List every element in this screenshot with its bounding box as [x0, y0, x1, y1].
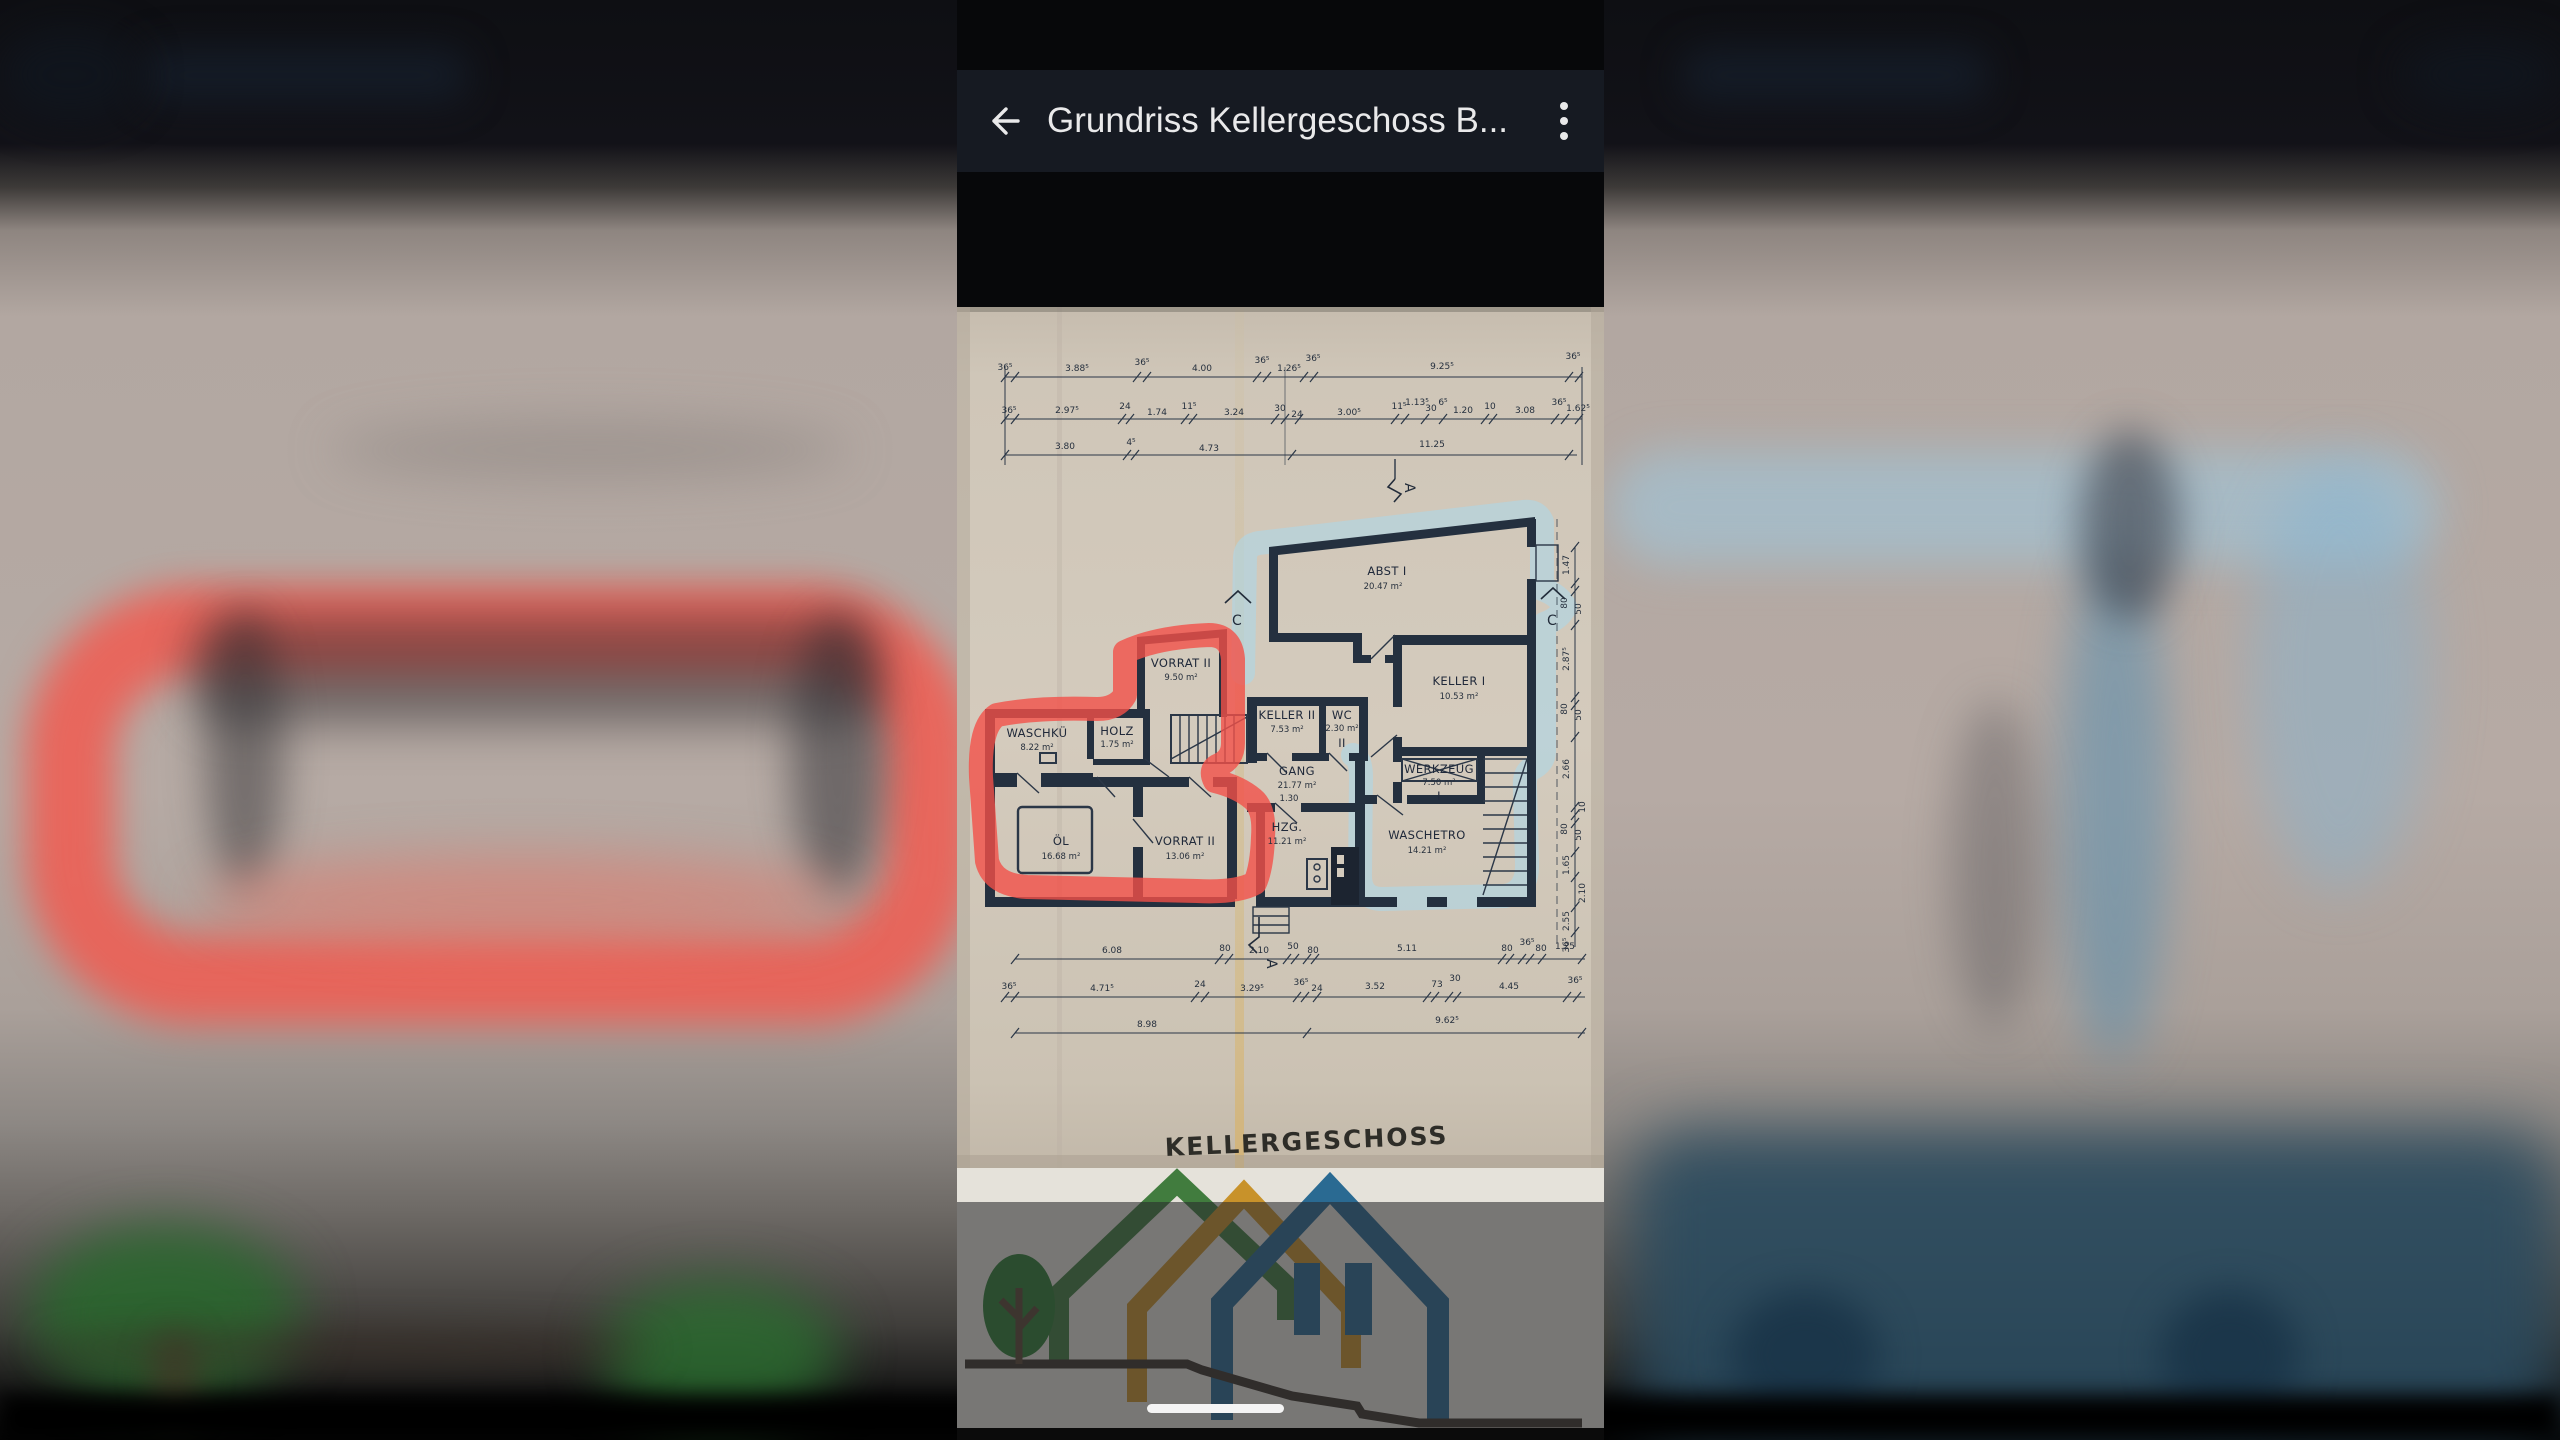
background-blur: [330, 420, 850, 480]
dim-label: 1.47: [1562, 555, 1572, 575]
logo-strip: [957, 1168, 1604, 1440]
room-label: VORRAT II: [1155, 834, 1215, 848]
background-blur: [140, 48, 470, 103]
background-blur: [200, 855, 850, 945]
dim-label: 3.52: [1365, 982, 1385, 992]
dim-label: 30: [1425, 404, 1437, 414]
dim-label: 36⁵: [1305, 354, 1320, 364]
dim-label: 36⁵: [1134, 358, 1149, 368]
section-marker-label: A: [1263, 959, 1279, 969]
room-label: HZG.: [1272, 820, 1303, 834]
room-label: GANG: [1279, 764, 1315, 778]
dim-label: 2.66: [1562, 759, 1572, 779]
dim-label: 80: [1219, 944, 1231, 954]
navigation-scrim: [957, 1202, 1604, 1428]
room-area: 16.68 m²: [1042, 852, 1081, 862]
dim-label: 36⁵: [1293, 978, 1308, 988]
dim-label: 2.87⁵: [1562, 647, 1572, 671]
room-label: HOLZ: [1100, 724, 1134, 738]
room-area: 20.47 m²: [1364, 582, 1403, 592]
dim-label: 24: [1194, 980, 1206, 990]
dim-label: 3.80: [1055, 442, 1075, 452]
dim-label: 8.98: [1137, 1020, 1157, 1030]
room-area: 14.21 m²: [1408, 846, 1447, 856]
dim-label: 11.25: [1419, 440, 1445, 450]
section-marker-label: C: [1232, 613, 1242, 629]
dim-label: 10: [1484, 402, 1496, 412]
background-blur: [1950, 700, 2040, 1030]
dim-label: 73: [1431, 980, 1442, 990]
dim-label: 36⁵: [1519, 938, 1534, 948]
dim-label: 50: [1574, 603, 1584, 615]
background-blur: [40, 1330, 660, 1365]
dim-label: 9.62⁵: [1435, 1016, 1459, 1026]
dim-label: 36⁵: [1562, 937, 1572, 952]
home-indicator[interactable]: [1147, 1404, 1284, 1413]
room-area: 13.06 m²: [1166, 852, 1205, 862]
dim-label: 9.25⁵: [1430, 362, 1454, 372]
background-blue-streak-blur: [2060, 540, 2170, 1060]
dim-label: 80: [1560, 703, 1570, 715]
dim-label: 3.00⁵: [1337, 408, 1361, 418]
background-blur: [0, 30, 140, 120]
dim-label: 4.73: [1199, 444, 1219, 454]
background-blur: [2400, 40, 2560, 110]
room-area: 7.53 m²: [1270, 725, 1303, 735]
dim-label: 3.08: [1515, 406, 1535, 416]
dim-label: 1.74: [1147, 408, 1167, 418]
dim-label: 80: [1560, 597, 1570, 609]
background-blur: [190, 615, 880, 725]
background-blur: [790, 615, 885, 895]
room-area: 7.50 m²: [1422, 778, 1455, 788]
screenshot-stage: Grundriss Kellergeschoss B...: [0, 0, 2560, 1440]
back-button[interactable]: [957, 101, 1047, 141]
dim-label: 1.20: [1453, 406, 1473, 416]
room-label: ÖL: [1053, 832, 1069, 848]
room-label: VORRAT II: [1151, 656, 1211, 670]
dim-label: 4.45: [1499, 982, 1519, 992]
dim-label: 80: [1307, 946, 1319, 956]
dim-label: 24: [1311, 984, 1323, 994]
background-blue-streak-blur: [2250, 460, 2430, 890]
dim-label: 2.55: [1562, 911, 1572, 931]
dim-label: 6.08: [1102, 946, 1122, 956]
section-marker-label: A: [1401, 483, 1417, 493]
dim-label: 3.29⁵: [1240, 984, 1264, 994]
dim-label: 5.11: [1397, 944, 1417, 954]
room-label-suffix: I: [1437, 789, 1441, 803]
room-label: WERKZEUG: [1404, 762, 1474, 776]
dim-label: 36⁵: [1001, 982, 1016, 992]
dim-label: 4.71⁵: [1090, 984, 1114, 994]
dim-label: 36⁵: [1551, 398, 1566, 408]
dim-label: 30: [1449, 974, 1461, 984]
room-label: ABST I: [1367, 564, 1406, 578]
room-label: WASCHETRO: [1388, 828, 1466, 842]
dim-label: 50: [1287, 942, 1299, 952]
room-label: KELLER I: [1432, 674, 1485, 688]
room-area: 8.22 m²: [1020, 743, 1053, 753]
room-area: 2.30 m²: [1325, 724, 1358, 734]
dim-label: 24: [1119, 402, 1131, 412]
overflow-menu-button[interactable]: [1524, 98, 1604, 144]
dim-label: 30: [1274, 404, 1286, 414]
dim-label: 80: [1560, 823, 1570, 835]
room-label: KELLER II: [1259, 708, 1316, 722]
floorplan-image[interactable]: ABST I 20.47 m² KELLER I 10.53 m² VORRAT…: [957, 307, 1604, 1168]
dim-label: 2.10: [1249, 946, 1269, 956]
room-area: 1.75 m²: [1100, 740, 1133, 750]
dim-label: 36⁵: [1565, 352, 1580, 362]
room-area: 21.77 m²: [1278, 781, 1317, 791]
dim-label: 36⁵: [1254, 356, 1269, 366]
dim-label: 36⁵: [997, 363, 1012, 373]
dim-label: 80: [1535, 944, 1547, 954]
dim-label: 2.10: [1578, 883, 1588, 903]
kebab-menu-icon: [1557, 98, 1571, 144]
background-blur: [205, 610, 285, 890]
dim-label: 1.26⁵: [1277, 364, 1301, 374]
dim-label: 3.88⁵: [1065, 364, 1089, 374]
page-title: Grundriss Kellergeschoss B...: [1047, 101, 1524, 141]
dim-label: 2.97⁵: [1055, 406, 1079, 416]
dim-label: 4.00: [1192, 364, 1212, 374]
arrow-left-icon: [982, 101, 1022, 141]
navigation-bar: [957, 1428, 1604, 1440]
dim-label: 36⁵: [1567, 976, 1582, 986]
room-label-suffix: II: [1338, 736, 1346, 750]
floorplan-svg: ABST I 20.47 m² KELLER I 10.53 m² VORRAT…: [957, 307, 1604, 1168]
dim-label: 1.62⁵: [1566, 404, 1590, 414]
dim-label: 24: [1291, 410, 1303, 420]
section-marker-label: C: [1547, 613, 1557, 629]
dim-label: 50: [1574, 709, 1584, 721]
dim-label: 80: [1501, 944, 1513, 954]
dim-label: 10: [1578, 801, 1588, 813]
dim-label: 50: [1574, 829, 1584, 841]
dim-label: 11⁵: [1181, 402, 1196, 412]
dim-label: 6⁵: [1438, 398, 1448, 408]
dim-label: 3.24: [1224, 408, 1244, 418]
room-label: WC: [1332, 708, 1352, 722]
dim-label: 1.30: [1280, 794, 1299, 804]
app-bar: Grundriss Kellergeschoss B...: [957, 70, 1604, 172]
room-area: 10.53 m²: [1440, 692, 1479, 702]
room-label: WASCHKÜ: [1006, 724, 1067, 740]
background-blur: [2080, 430, 2180, 620]
room-area: 11.21 m²: [1268, 837, 1307, 847]
background-blur: [1680, 48, 1990, 103]
dim-label: 36⁵: [1001, 406, 1016, 416]
room-area: 9.50 m²: [1164, 673, 1197, 683]
dim-label: 1.65: [1562, 855, 1572, 875]
dim-label: 4⁵: [1126, 438, 1136, 448]
phone-screen: Grundriss Kellergeschoss B...: [957, 0, 1604, 1440]
